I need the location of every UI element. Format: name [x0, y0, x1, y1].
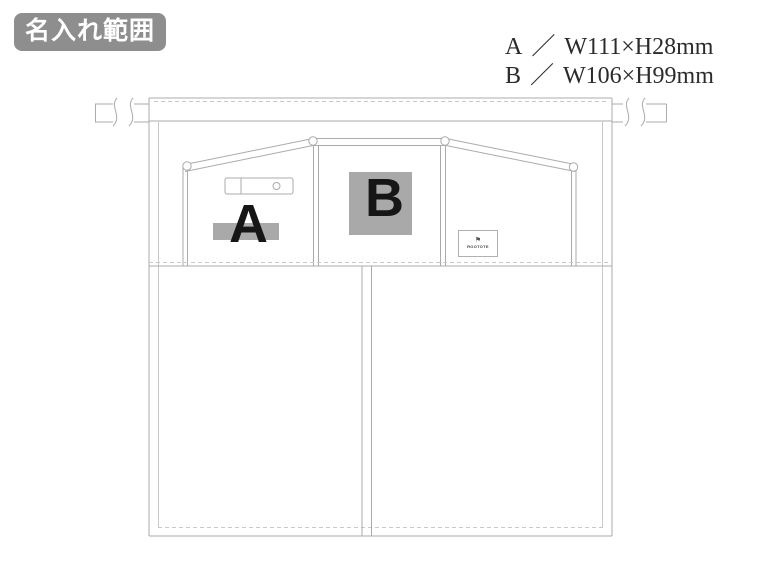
print-area-b-label: B [365, 171, 404, 225]
center-seam [362, 266, 372, 536]
right-pocket-flap [446, 139, 575, 172]
middle-pocket-top [313, 139, 446, 146]
pocket-divider-left [314, 146, 319, 266]
legend-row-a: A ／ W111×H28mm [505, 33, 714, 62]
right-pocket-hem [572, 168, 577, 266]
canvas: 名入れ範囲 A ／ W111×H28mm B ／ W106×H99mm A B … [0, 0, 760, 570]
pen-holder [225, 178, 293, 194]
waist-ties [95, 98, 667, 126]
print-range-badge-label: 名入れ範囲 [25, 17, 155, 45]
horizontal-seam [149, 263, 612, 267]
waist-band [149, 98, 612, 121]
legend-a-label: A [505, 33, 522, 62]
brand-label: ⚑ ROOTOTE [458, 230, 498, 257]
grommet-icon [569, 163, 577, 171]
brand-label-text: ROOTOTE [467, 245, 489, 250]
grommet-icons [183, 137, 578, 171]
left-pocket-flap [185, 139, 313, 172]
left-pocket-hem [183, 168, 188, 266]
apron-body-outline [149, 98, 612, 536]
snap-icon [273, 183, 280, 190]
grommet-icon [183, 162, 191, 170]
print-range-badge: 名入れ範囲 [14, 13, 166, 51]
legend-row-b: B ／ W106×H99mm [505, 62, 714, 91]
size-legend: A ／ W111×H28mm B ／ W106×H99mm [505, 33, 714, 91]
legend-a-size: W111×H28mm [564, 33, 713, 62]
legend-b-label: B [505, 62, 521, 91]
legend-b-size: W106×H99mm [563, 62, 714, 91]
break-mark-right [625, 98, 645, 126]
legend-a-separator: ／ [531, 33, 555, 62]
grommet-icon [441, 137, 449, 145]
legend-b-separator: ／ [530, 62, 554, 91]
break-mark-left [113, 98, 133, 126]
print-area-a-label: A [229, 197, 268, 251]
pocket-divider-right [441, 146, 446, 266]
grommet-icon [309, 137, 317, 145]
